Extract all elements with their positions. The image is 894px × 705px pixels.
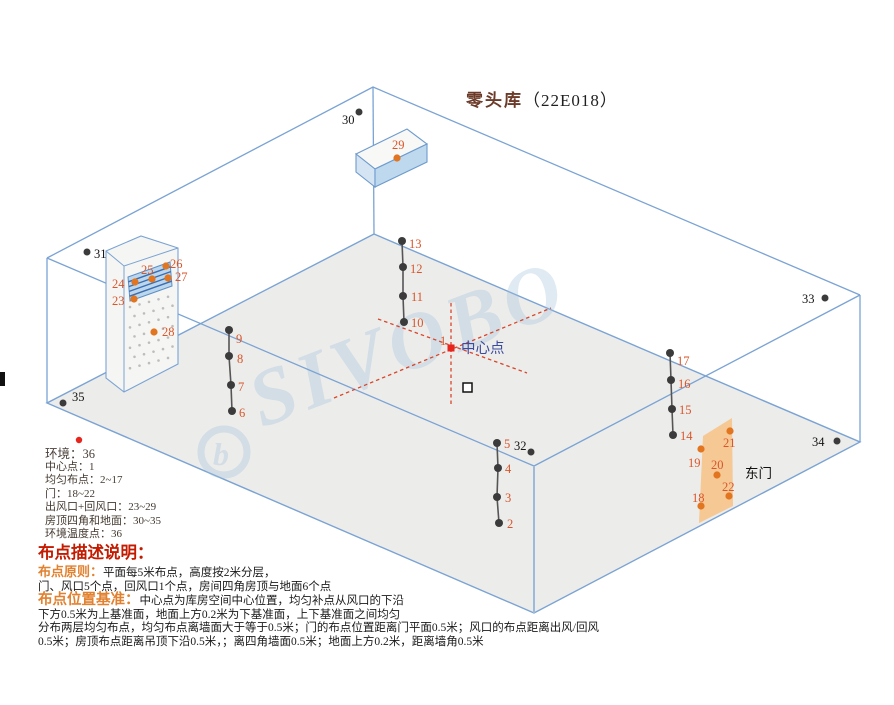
perforation-dot — [167, 357, 170, 360]
perforation-dot — [171, 304, 174, 307]
room-code: （22E018） — [523, 91, 618, 110]
legend-item: 均匀布点：2~17 — [45, 474, 161, 487]
point-dot-5 — [493, 439, 501, 447]
point-dot-4 — [494, 464, 502, 472]
perforation-dot — [143, 333, 146, 336]
point-label-11: 11 — [411, 290, 423, 304]
environment-label: 环境：36 — [45, 443, 95, 462]
point-dot-9 — [225, 326, 233, 334]
perforation-dot — [129, 306, 132, 309]
watermark-logo-letter: b — [213, 436, 229, 472]
point-dot-20 — [713, 471, 720, 478]
notes-principle-line1: 布点原则：平面每5米布点，高度按2米分层， — [38, 565, 599, 581]
perforation-dot — [167, 316, 170, 319]
perforation-dot — [138, 324, 141, 327]
perforation-dot — [152, 310, 155, 313]
point-dot-12 — [399, 263, 407, 271]
legend-item: 门：18~22 — [45, 488, 161, 501]
point-dot-27 — [164, 274, 171, 281]
basis-text1: 中心点为库房空间中心位置，均匀补点从风口的下沿 — [140, 595, 405, 607]
perforation-dot — [148, 301, 151, 304]
point-dot-7 — [227, 381, 235, 389]
point-label-31: 31 — [94, 247, 107, 261]
point-dot-11 — [399, 292, 407, 300]
point-label-19: 19 — [688, 456, 701, 470]
perforation-dot — [162, 307, 165, 310]
point-label-17: 17 — [677, 354, 690, 368]
legend-item: 环境温度点：36 — [45, 528, 161, 541]
point-dot-30 — [356, 109, 363, 116]
perforation-dot — [162, 348, 165, 351]
center-point-label: 中心点 — [461, 340, 505, 357]
point-dot-28 — [150, 328, 157, 335]
floor-square-marker — [463, 383, 472, 392]
point-label-4: 4 — [505, 462, 512, 476]
point-label-8: 8 — [237, 352, 243, 366]
perforation-dot — [171, 345, 174, 348]
point-dot-3 — [493, 493, 501, 501]
point-label-13: 13 — [409, 237, 422, 251]
point-label-18: 18 — [692, 491, 705, 505]
point-label-3: 3 — [505, 491, 511, 505]
legend: 中心点：1均匀布点：2~17门：18~22出风口+回风口：23~29房顶四角和地… — [45, 461, 161, 541]
placement-diagram-page: b SIVOBO — [0, 0, 894, 705]
page-title: 零头库（22E018） — [466, 86, 618, 111]
point-dot-21 — [726, 427, 733, 434]
perforation-dot — [129, 347, 132, 350]
notes-heading: 布点描述说明： — [38, 543, 599, 563]
perforation-dot — [157, 318, 160, 321]
point-dot-33 — [822, 295, 829, 302]
point-label-35: 35 — [72, 390, 85, 404]
point-label-21: 21 — [723, 436, 736, 450]
perforation-dot — [148, 321, 151, 324]
point-label-33: 33 — [802, 292, 815, 306]
room-name: 零头库 — [466, 91, 523, 110]
legend-item: 中心点：1 — [45, 461, 161, 474]
air-cooler-unit — [106, 236, 178, 392]
notes-basis-line2: 下方0.5米为上基准面，地面上方0.2米为下基准面，上下基准面之间均匀 — [38, 609, 599, 623]
east-door-label: 东门 — [745, 466, 772, 481]
perforation-dot — [138, 344, 141, 347]
point-dot-10 — [400, 318, 408, 326]
point-dot-6 — [228, 407, 236, 415]
point-label-27: 27 — [175, 270, 188, 284]
perforation-dot — [143, 312, 146, 315]
point-dot-31 — [84, 249, 91, 256]
perforation-dot — [129, 326, 132, 329]
principle-text1: 平面每5米布点，高度按2米分层， — [103, 567, 276, 579]
point-label-20: 20 — [711, 458, 724, 472]
point-label-9: 9 — [236, 332, 242, 346]
notes-basis-line3: 分布两层均匀布点，均匀布点离墙面大于等于0.5米；门的布点位置距离门平面0.5米… — [38, 622, 599, 636]
point-dot-34 — [834, 438, 841, 445]
center-point-dot — [448, 345, 455, 352]
perforation-dot — [167, 295, 170, 298]
perforation-dot — [138, 303, 141, 306]
point-label-25: 25 — [141, 263, 154, 277]
point-label-28: 28 — [162, 325, 175, 339]
left-edge-mark — [0, 372, 5, 386]
point-label-24: 24 — [112, 277, 125, 291]
point-dot-2 — [495, 519, 503, 527]
perforation-dot — [148, 341, 151, 344]
point-dot-19 — [697, 445, 704, 452]
point-dot-15 — [668, 405, 676, 413]
point-label-12: 12 — [410, 262, 423, 276]
point-label-7: 7 — [238, 380, 244, 394]
point-dot-23 — [130, 295, 137, 302]
point-label-22: 22 — [722, 480, 735, 494]
point-dot-29 — [393, 154, 400, 161]
legend-item: 出风口+回风口：23~29 — [45, 501, 161, 514]
perforation-dot — [138, 364, 141, 367]
point-dot-35 — [60, 400, 67, 407]
point-label-34: 34 — [812, 435, 825, 449]
point-label-30: 30 — [342, 113, 355, 127]
notes-basis-line1: 布点位置基准：中心点为库房空间中心位置，均匀补点从风口的下沿 — [38, 594, 599, 609]
point-label-26: 26 — [170, 257, 183, 271]
perforation-dot — [133, 355, 136, 358]
point-label-6: 6 — [239, 406, 245, 420]
perforation-dot — [129, 367, 132, 370]
perforation-dot — [133, 315, 136, 318]
point-dot-8 — [225, 352, 233, 360]
perforation-dot — [152, 350, 155, 353]
principle-label: 布点原则： — [38, 564, 103, 579]
point-label-2: 2 — [507, 517, 513, 531]
center-point-number: 1 — [440, 334, 446, 348]
notes-basis-line4: 0.5米；房顶布点距离吊顶下沿0.5米，；离四角墙面0.5米；地面上方0.2米，… — [38, 636, 599, 650]
notes-block: 布点描述说明： 布点原则：平面每5米布点，高度按2米分层， 门、风口5个点，回风… — [38, 543, 599, 650]
point-dot-16 — [667, 376, 675, 384]
basis-label: 布点位置基准： — [38, 592, 140, 608]
point-dot-32 — [528, 449, 535, 456]
point-label-29: 29 — [392, 138, 405, 152]
point-dot-14 — [669, 431, 677, 439]
perforation-dot — [143, 353, 146, 356]
point-label-32: 32 — [514, 439, 527, 453]
point-label-14: 14 — [680, 429, 693, 443]
point-dot-13 — [398, 237, 406, 245]
perforation-dot — [148, 362, 151, 365]
point-label-23: 23 — [112, 294, 125, 308]
perforation-dot — [133, 335, 136, 338]
perforation-dot — [157, 298, 160, 301]
point-label-15: 15 — [679, 403, 692, 417]
point-label-5: 5 — [504, 437, 510, 451]
point-dot-26 — [162, 262, 169, 269]
perforation-dot — [157, 359, 160, 362]
point-dot-24 — [131, 278, 138, 285]
point-label-10: 10 — [411, 316, 424, 330]
legend-item: 房顶四角和地面：30~35 — [45, 515, 161, 528]
point-label-16: 16 — [678, 377, 691, 391]
point-dot-17 — [666, 349, 674, 357]
perforation-dot — [157, 339, 160, 342]
